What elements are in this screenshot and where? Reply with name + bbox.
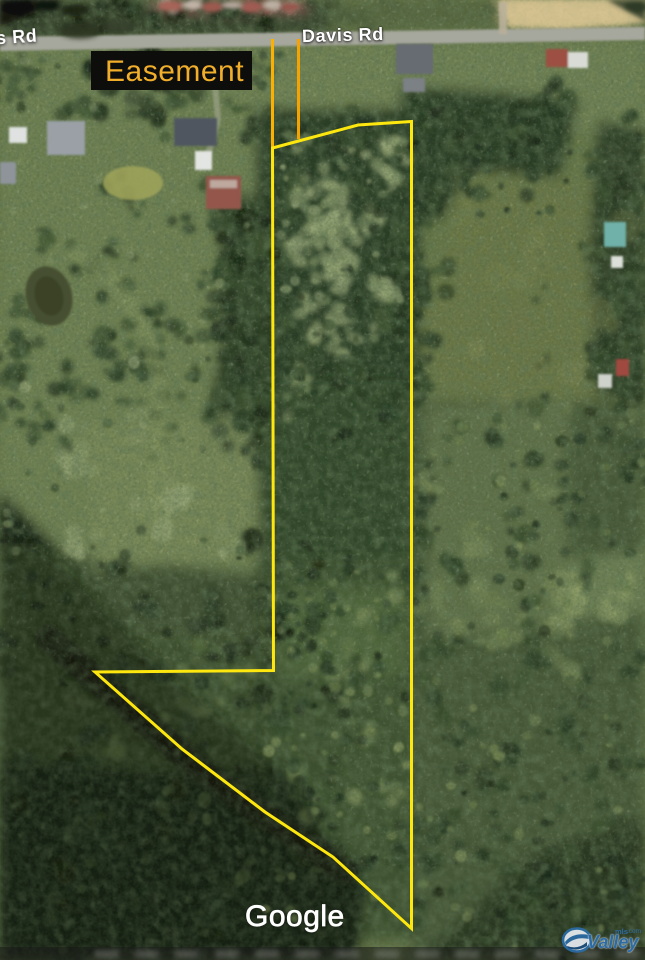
svg-text:mls: mls	[615, 927, 628, 936]
svg-text:.com: .com	[627, 928, 641, 935]
svg-text:Valley: Valley	[587, 932, 639, 952]
